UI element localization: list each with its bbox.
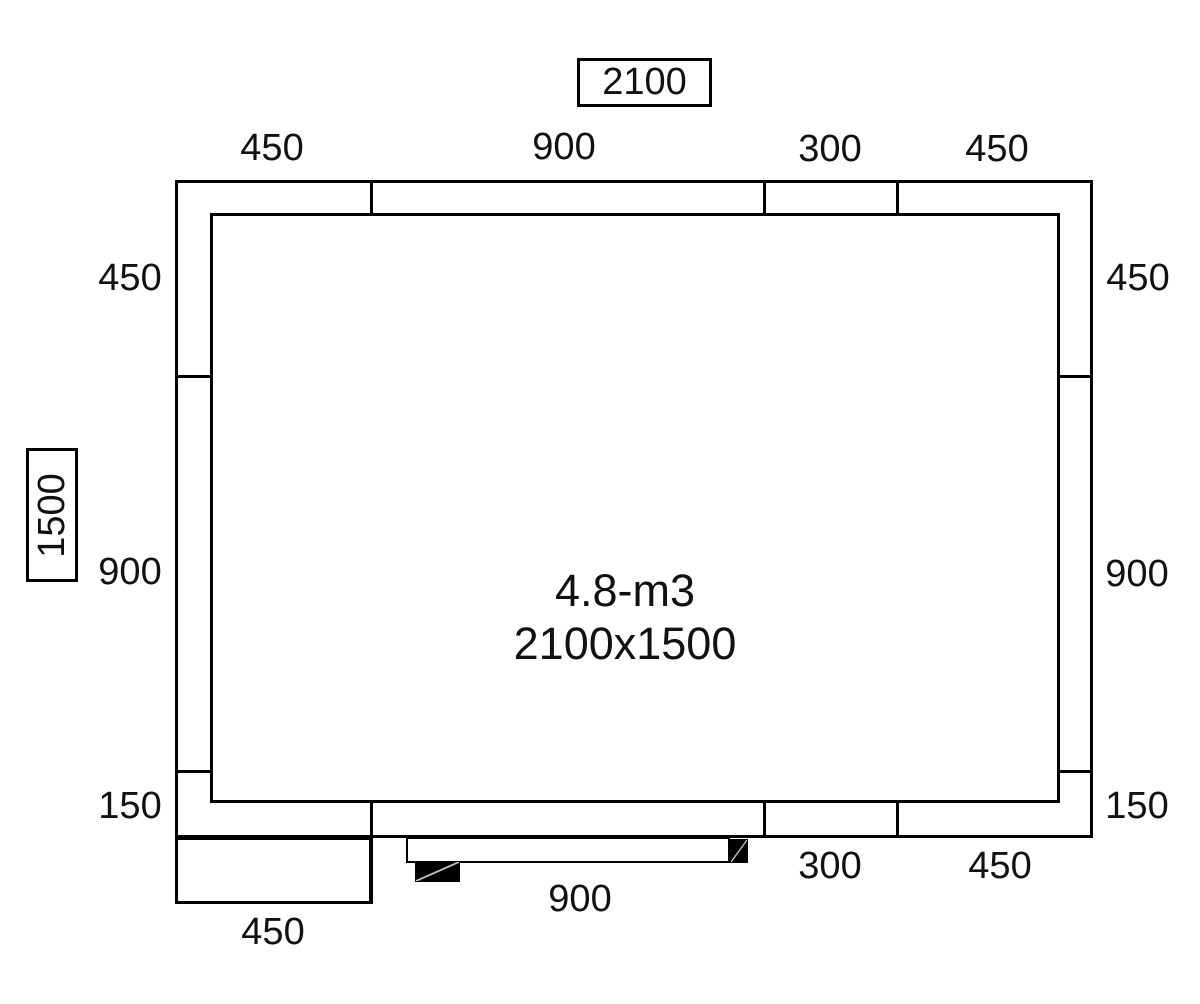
panel-joint-top-1 <box>370 180 373 216</box>
dim-label-left-2: 900 <box>98 553 161 591</box>
inner-wall-outline <box>210 213 1060 803</box>
overall-width-value: 2100 <box>602 61 687 104</box>
overall-depth-dimension-box: 1500 <box>26 448 78 582</box>
panel-joint-left-2 <box>175 770 211 773</box>
panel-joint-left-1 <box>175 375 211 378</box>
panel-joint-top-2 <box>763 180 766 216</box>
overall-depth-value: 1500 <box>31 473 74 558</box>
overall-width-dimension-box: 2100 <box>577 58 712 107</box>
panel-joint-right-2 <box>1058 770 1093 773</box>
room-volume-label: 4.8-m3 <box>514 564 737 617</box>
dim-label-right-1: 450 <box>1106 259 1169 297</box>
corner-panel-box <box>175 837 372 904</box>
floor-plan-canvas: 2100 1500 450 900 300 450 450 900 150 45… <box>0 0 1200 1004</box>
door-hinge <box>730 839 748 863</box>
panel-joint-right-1 <box>1058 375 1093 378</box>
dim-label-bottom-2: 900 <box>548 880 611 918</box>
dim-label-bottom-1: 450 <box>241 913 304 951</box>
panel-joint-bottom-3 <box>896 803 899 838</box>
dim-label-left-1: 450 <box>98 259 161 297</box>
dim-label-bottom-3: 300 <box>798 847 861 885</box>
room-info-text: 4.8-m3 2100x1500 <box>514 564 737 670</box>
dim-label-top-2: 900 <box>532 128 595 166</box>
dim-label-bottom-4: 450 <box>968 847 1031 885</box>
door-handle <box>415 861 460 882</box>
dim-label-top-4: 450 <box>965 130 1028 168</box>
dim-label-top-3: 300 <box>798 130 861 168</box>
dim-label-top-1: 450 <box>240 129 303 167</box>
dim-label-right-3: 150 <box>1105 787 1168 825</box>
panel-joint-top-3 <box>896 180 899 216</box>
dim-label-right-2: 900 <box>1105 555 1168 593</box>
door-leaf <box>406 837 730 863</box>
dim-label-left-3: 150 <box>98 787 161 825</box>
panel-joint-bottom-2 <box>763 803 766 838</box>
room-size-label: 2100x1500 <box>514 617 737 670</box>
